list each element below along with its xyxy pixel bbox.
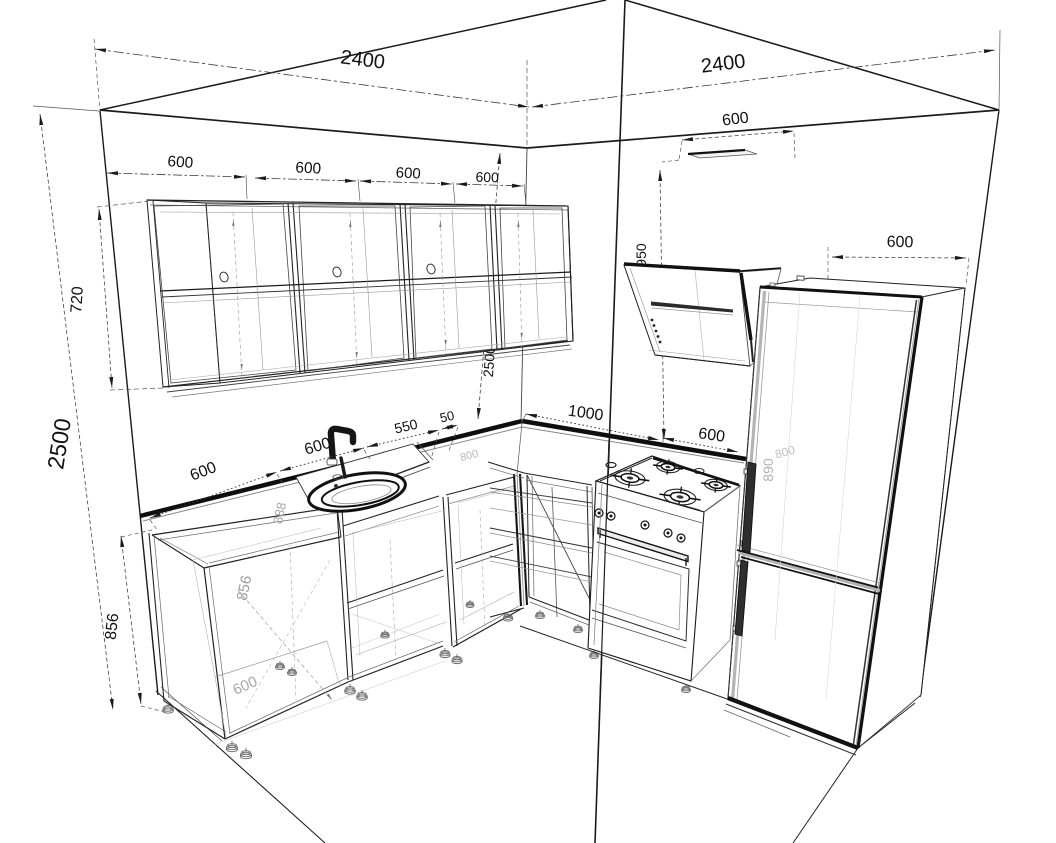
svg-text:720: 720 <box>68 286 87 314</box>
svg-text:600: 600 <box>475 169 499 186</box>
svg-text:600: 600 <box>167 153 194 172</box>
svg-text:856: 856 <box>103 612 123 640</box>
svg-text:950: 950 <box>633 243 649 267</box>
svg-text:600: 600 <box>887 234 914 251</box>
svg-text:890: 890 <box>760 458 776 482</box>
svg-text:600: 600 <box>295 159 322 177</box>
svg-text:600: 600 <box>395 164 421 182</box>
svg-text:600: 600 <box>721 109 750 129</box>
